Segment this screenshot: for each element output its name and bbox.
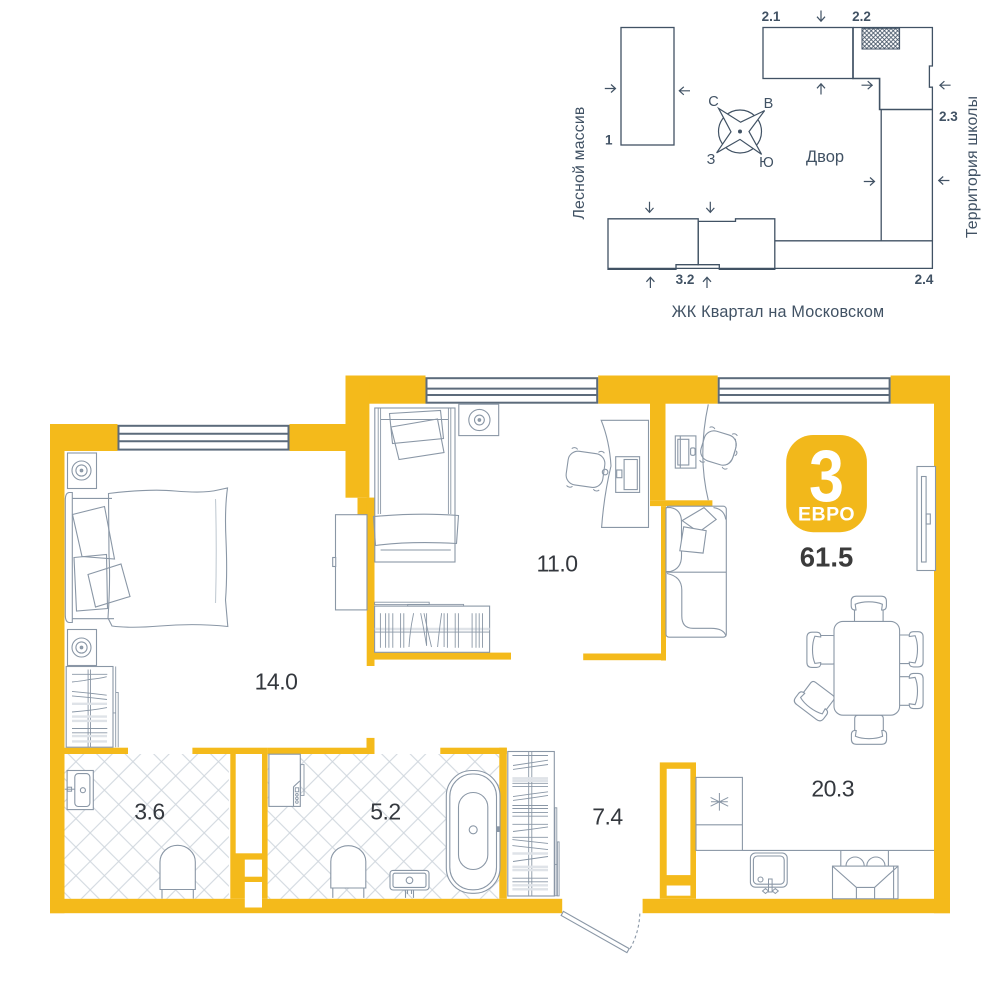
svg-text:11.0: 11.0 xyxy=(536,551,577,577)
svg-text:Двор: Двор xyxy=(806,148,844,166)
svg-text:ЖК Квартал на Московском: ЖК Квартал на Московском xyxy=(672,303,885,321)
svg-text:2.3: 2.3 xyxy=(939,109,958,124)
svg-text:С: С xyxy=(708,94,718,110)
svg-text:В: В xyxy=(764,96,774,112)
svg-text:14.0: 14.0 xyxy=(255,668,298,694)
svg-text:2.2: 2.2 xyxy=(852,9,871,24)
svg-text:Ю: Ю xyxy=(759,155,774,171)
svg-text:Территория школы: Территория школы xyxy=(964,96,981,238)
svg-text:3.2: 3.2 xyxy=(676,272,695,287)
svg-text:2.4: 2.4 xyxy=(915,272,934,287)
svg-text:61.5: 61.5 xyxy=(800,542,854,573)
svg-text:ЕВРО: ЕВРО xyxy=(798,504,855,526)
svg-text:7.4: 7.4 xyxy=(592,804,623,830)
svg-text:2.1: 2.1 xyxy=(762,9,781,24)
svg-text:3.6: 3.6 xyxy=(134,799,164,825)
svg-text:1: 1 xyxy=(605,133,613,148)
svg-text:5.2: 5.2 xyxy=(370,799,400,825)
svg-text:З: З xyxy=(707,152,716,168)
svg-text:Лесной массив: Лесной массив xyxy=(571,106,588,219)
svg-text:20.3: 20.3 xyxy=(811,775,854,801)
